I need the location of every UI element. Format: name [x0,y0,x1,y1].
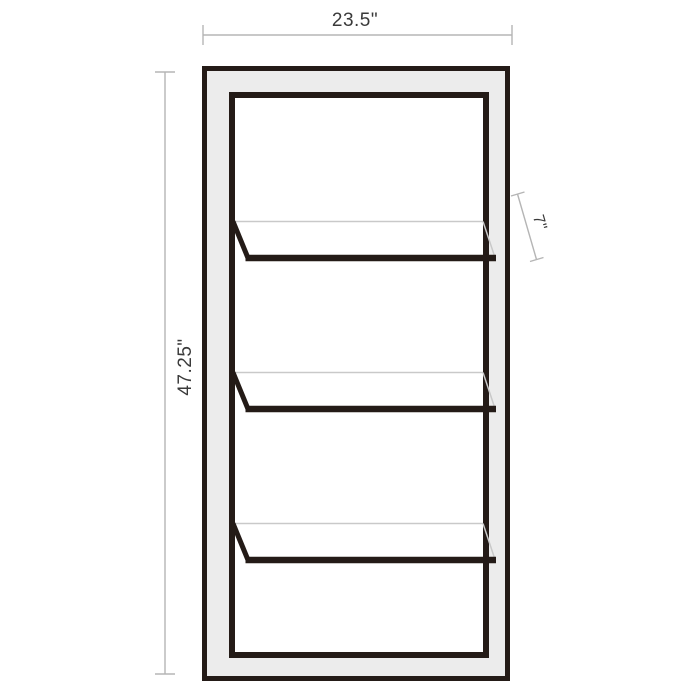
cabinet-inner-frame [232,95,486,655]
bookcase-dimension-diagram: 23.5" 47.25" 7" [0,0,700,700]
depth-dimension-label: 7" [529,213,550,233]
height-dimension-label: 47.25" [175,338,196,395]
width-dimension-label: 23.5" [332,10,378,31]
width-dimension: 23.5" [203,10,512,45]
height-dimension: 47.25" [155,72,196,674]
depth-dimension: 7" [511,192,550,262]
dimension-diagram-canvas: 23.5" 47.25" 7" [0,0,700,700]
